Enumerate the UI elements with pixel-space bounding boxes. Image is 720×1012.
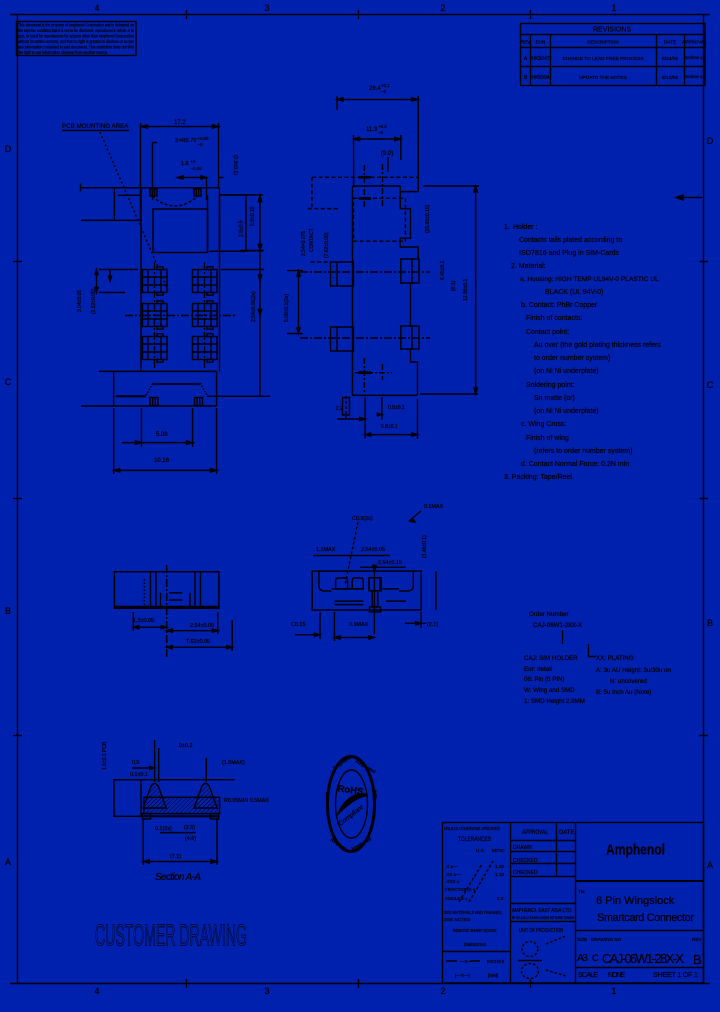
svg-text:TM: TM	[578, 889, 585, 894]
svg-text:REV: REV	[692, 937, 702, 942]
svg-text:(refers to order number system: (refers to order number system)	[534, 448, 632, 455]
svg-text:2.8±0.5: 2.8±0.5	[239, 220, 245, 237]
svg-text:SCALE: SCALE	[578, 970, 598, 979]
svg-text:2×R0.75: 2×R0.75	[175, 138, 196, 144]
svg-text:B: B	[707, 618, 713, 628]
svg-text:2.54±0.05: 2.54±0.05	[190, 623, 214, 629]
svg-text:Eur: detail: Eur: detail	[524, 666, 552, 673]
svg-text:CAJ-06W1-28X-X: CAJ-06W1-28X-X	[533, 622, 582, 629]
svg-text:This document is the property: This document is the property of Ampheno…	[18, 23, 134, 28]
svg-text:(7.62±0.05): (7.62±0.05)	[324, 232, 330, 258]
svg-text:Holder :: Holder :	[513, 224, 538, 231]
svg-text:4: 4	[94, 3, 99, 13]
svg-text:1.: 1.	[504, 224, 510, 231]
svg-text:6 Pin Wingslock: 6 Pin Wingslock	[596, 895, 675, 907]
svg-text:REVISIONS: REVISIONS	[593, 27, 631, 34]
svg-text:Sn matte (or): Sn matte (or)	[534, 395, 575, 402]
svg-text:0.1MAX: 0.1MAX	[424, 504, 444, 510]
svg-text:c. Wing Cross:: c. Wing Cross:	[521, 421, 567, 428]
svg-text:2.54×0.075: 2.54×0.075	[301, 231, 307, 256]
svg-text:b. Contact: PhBr Copper: b. Contact: PhBr Copper	[521, 302, 598, 309]
svg-text:Au over (the gold plating thic: Au over (the gold plating thickness refe…	[534, 342, 661, 349]
svg-text:10.16: 10.16	[154, 458, 170, 464]
svg-text:LTD: LTD	[325, 791, 330, 800]
svg-text:C: C	[707, 380, 714, 390]
svg-text:C0.15: C0.15	[291, 622, 305, 628]
svg-text:2.0: 2.0	[497, 896, 504, 901]
svg-text:UNIT OF PRODUCTION: UNIT OF PRODUCTION	[519, 928, 563, 934]
svg-text:REV: REV	[521, 40, 531, 45]
svg-text:3: 3	[264, 986, 269, 996]
svg-text:N: uncovered: N: uncovered	[610, 678, 647, 685]
svg-text:PCB MOUNTING AREA: PCB MOUNTING AREA	[62, 123, 129, 130]
svg-text:8.45±0.1: 8.45±0.1	[440, 260, 446, 280]
svg-text:DRAWN: DRAWN	[513, 845, 532, 851]
svg-text:ECN: ECN	[536, 40, 546, 45]
svg-text:2.54±0.15: 2.54±0.15	[378, 560, 402, 566]
svg-text:C: C	[592, 953, 599, 963]
svg-text:(9.0): (9.0)	[381, 151, 393, 157]
svg-text:DESCRIPTION: DESCRIPTION	[587, 40, 618, 45]
svg-text:a. Housing: HIGH TEMP UL94V-0: a. Housing: HIGH TEMP UL94V-0 PLASTIC UL	[520, 276, 659, 283]
svg-text:SHEET 1 OF 1: SHEET 1 OF 1	[653, 970, 698, 979]
svg-text:Order Number: Order Number	[529, 611, 569, 618]
svg-text:0.5±0.1: 0.5±0.1	[388, 405, 405, 411]
svg-text:(4.6): (4.6)	[185, 836, 196, 842]
svg-text:5/12/05: 5/12/05	[662, 75, 678, 81]
svg-text:2: 2	[440, 986, 445, 996]
svg-text:A3: A3	[577, 952, 588, 964]
svg-text:A: A	[5, 857, 11, 867]
svg-text:(on Ni Ni underplate): (on Ni Ni underplate)	[534, 408, 599, 415]
svg-text:DIMENSIONS: DIMENSIONS	[464, 942, 486, 947]
svg-text:5.08: 5.08	[156, 432, 168, 438]
svg-text:5.08±0.1(2x): 5.08±0.1(2x)	[284, 294, 290, 322]
svg-text:Soldering point:: Soldering point:	[526, 382, 575, 389]
svg-text:06: Pin (6 PIN): 06: Pin (6 PIN)	[524, 676, 565, 683]
svg-text:R0.05MIN 0.5MAX: R0.05MIN 0.5MAX	[224, 798, 269, 804]
svg-text:A: 3u AU Height: 3u/30u on: A: 3u AU Height: 3u/30u on	[596, 667, 672, 674]
svg-text:C: C	[5, 377, 12, 387]
svg-text:1.10: 1.10	[495, 872, 504, 877]
svg-text:REMOVE SHARP EDGES: REMOVE SHARP EDGES	[453, 928, 497, 933]
svg-text:(7.1): (7.1)	[170, 854, 181, 860]
svg-text:3.04±0.05: 3.04±0.05	[77, 290, 83, 312]
svg-text:the express condition that it: the express condition that it is not to …	[18, 28, 134, 33]
svg-text:CHECKED: CHECKED	[513, 870, 538, 876]
svg-text:+0.05: +0.05	[198, 136, 210, 141]
svg-text:−0.05: −0.05	[191, 166, 203, 171]
svg-text:D: D	[5, 144, 12, 154]
svg-text:(3.45±0.1): (3.45±0.1)	[422, 535, 428, 558]
svg-text:0.5: 0.5	[132, 760, 140, 766]
svg-text:XX: PLATING: XX: PLATING	[596, 655, 634, 662]
svg-text:(25.95±0.15): (25.95±0.15)	[425, 204, 431, 233]
svg-text:1.6±0.1 PCB: 1.6±0.1 PCB	[102, 741, 108, 770]
svg-text:to order number system): to order number system)	[534, 355, 610, 362]
svg-text:3. Packing: Tape/Reel.: 3. Packing: Tape/Reel.	[504, 474, 574, 481]
svg-text:SIZE: SIZE	[577, 937, 587, 942]
svg-text:Andrew Ls: Andrew Ls	[683, 74, 706, 79]
svg-text:26.4: 26.4	[369, 86, 381, 92]
svg-text:D: D	[707, 136, 714, 146]
svg-text:B: 5u inch Au (Note): B: 5u inch Au (Note)	[596, 689, 651, 696]
svg-text:0.1(2x): 0.1(2x)	[155, 826, 172, 832]
svg-text:B: B	[5, 606, 11, 616]
svg-text:0.9MAX: 0.9MAX	[349, 622, 369, 628]
svg-text:INTL: INTL	[372, 790, 378, 801]
svg-text:(2.1): (2.1)	[427, 622, 438, 628]
svg-text:[—X—]: [—X—]	[455, 973, 470, 978]
svg-text:A: A	[707, 860, 713, 870]
svg-text:.XX ±—: .XX ±—	[445, 872, 461, 877]
svg-text:d. Contact Normal Force: 0.2N: d. Contact Normal Force: 0.2N min	[521, 461, 629, 468]
svg-text:Andrew Ls: Andrew Ls	[683, 55, 706, 60]
svg-text:.XXX ±: .XXX ±	[445, 879, 460, 884]
svg-text:DATE: DATE	[559, 830, 575, 836]
svg-text:+0: +0	[191, 159, 197, 164]
svg-text:9±0.2: 9±0.2	[179, 743, 192, 749]
svg-text:1.6: 1.6	[181, 161, 189, 167]
svg-text:HK5994: HK5994	[531, 75, 549, 81]
svg-text:Smartcard Connector: Smartcard Connector	[597, 912, 694, 924]
svg-text:DRAWING NO: DRAWING NO	[591, 937, 622, 942]
svg-text:(on Ni Ni underplate): (on Ni Ni underplate)	[534, 368, 599, 375]
svg-text:part, or used for manufacture: part, or used for manufacture for anyone…	[18, 34, 134, 39]
svg-text:11.3: 11.3	[366, 127, 378, 133]
svg-text:CHECKED: CHECKED	[513, 858, 538, 864]
svg-text:UPDATE THE NOTES: UPDATE THE NOTES	[579, 75, 627, 81]
svg-text:12.95±0.1: 12.95±0.1	[463, 279, 469, 301]
svg-text:BLACK (UL 94V-0): BLACK (UL 94V-0)	[545, 289, 604, 296]
svg-text:TOLERANCES: TOLERANCES	[458, 836, 491, 843]
svg-text:+0.2: +0.2	[378, 124, 387, 129]
svg-text:2.54±0.05(2x): 2.54±0.05(2x)	[251, 291, 257, 322]
svg-text:2. Material:: 2. Material:	[511, 263, 546, 270]
svg-text:UNLESS OTHERWISE SPECIFIED: UNLESS OTHERWISE SPECIFIED	[444, 826, 501, 831]
svg-text:1: SMD Height 2.8MM: 1: SMD Height 2.8MM	[524, 698, 585, 705]
svg-text:Contact point:: Contact point:	[526, 329, 569, 336]
svg-text:2: 2	[440, 3, 445, 13]
svg-text:C0.3(2x): C0.3(2x)	[352, 516, 373, 522]
svg-text:METRIC: METRIC	[492, 848, 505, 853]
svg-text:Contacts tails plated accordin: Contacts tails plated according to	[519, 237, 622, 244]
svg-text:the right to use information o: the right to use information obtained fr…	[18, 50, 108, 55]
svg-text:DATE: DATE	[664, 40, 676, 45]
svg-text:Finish of wing: Finish of wing	[526, 435, 569, 442]
svg-text:4: 4	[94, 986, 99, 996]
svg-text:AMPHENOL EAST ASIA LTD.: AMPHENOL EAST ASIA LTD.	[512, 908, 572, 914]
svg-text:1.50: 1.50	[495, 864, 504, 869]
svg-text:B: B	[693, 952, 702, 967]
svg-text:FRACTIONS ±: FRACTIONS ±	[445, 887, 476, 892]
svg-text:2.54±0.05: 2.54±0.05	[361, 547, 385, 553]
svg-text:−0: −0	[198, 142, 204, 147]
svg-text:HK5047: HK5047	[531, 56, 549, 62]
svg-text:CHANGE TO LEAD FREE PROCESS: CHANGE TO LEAD FREE PROCESS	[562, 56, 643, 62]
svg-text:(0.1): (0.1)	[451, 280, 457, 291]
svg-text:U.S.: U.S.	[476, 848, 485, 853]
svg-text:3: 3	[264, 3, 269, 13]
svg-text:without its written consent, a: without its written consent, and that no…	[18, 39, 134, 44]
svg-text:Section A-A: Section A-A	[155, 872, 201, 883]
svg-text:1.3±0.05: 1.3±0.05	[133, 618, 154, 624]
svg-text:2.2: 2.2	[336, 406, 343, 412]
svg-text:INCHES: INCHES	[487, 959, 504, 964]
svg-text:5F NO.142-1 CHUNG CHENG RD TAI: 5F NO.142-1 CHUNG CHENG RD TAIPEI TAIWAN	[512, 916, 574, 920]
svg-text:5/24/05: 5/24/05	[662, 56, 678, 62]
svg-text:−0: −0	[378, 130, 384, 135]
svg-text:SEE NOTES: SEE NOTES	[444, 917, 470, 922]
svg-text:−0: −0	[381, 89, 387, 94]
svg-text:CUSTOMER DRAWING: CUSTOMER DRAWING	[95, 918, 247, 953]
svg-text:5.6±0.1: 5.6±0.1	[381, 424, 398, 430]
svg-text:ANGLES ±: ANGLES ±	[445, 896, 468, 901]
svg-text:any information contained in s: any information contained in said docume…	[18, 45, 135, 50]
svg-text:5.9±0.15: 5.9±0.15	[250, 206, 256, 226]
svg-text:0.1±0.1: 0.1±0.1	[130, 772, 148, 778]
svg-text:Finish of contacts:: Finish of contacts:	[526, 315, 582, 322]
svg-text:W: Wing and SMD: W: Wing and SMD	[524, 687, 575, 694]
svg-text:Amphenol: Amphenol	[606, 842, 665, 859]
svg-text:1.1MAX: 1.1MAX	[316, 547, 336, 553]
svg-text:7.62±0.05: 7.62±0.05	[186, 639, 210, 645]
svg-text:CAJ-06W1-28X-X: CAJ-06W1-28X-X	[602, 951, 684, 966]
svg-text:SEE MATERIALS AND FINISHES: SEE MATERIALS AND FINISHES	[444, 910, 502, 915]
svg-text:.X ±—: .X ±—	[445, 864, 458, 869]
svg-text:[MM]: [MM]	[488, 973, 498, 978]
svg-text:NONE: NONE	[608, 970, 625, 979]
svg-text:APPROVAL: APPROVAL	[682, 40, 707, 45]
svg-text:ISO7816 and Plug in SIM-Cards: ISO7816 and Plug in SIM-Cards	[519, 250, 619, 257]
svg-text:CAJ: SIM HOLDER: CAJ: SIM HOLDER	[524, 655, 578, 662]
svg-text:+0.1: +0.1	[381, 83, 390, 88]
svg-text:(0.9±0.1): (0.9±0.1)	[232, 155, 238, 175]
svg-text:CONTACT: CONTACT	[309, 228, 315, 252]
svg-text:(2.5): (2.5)	[184, 825, 195, 831]
svg-text:1: 1	[611, 986, 616, 996]
svg-text:1: 1	[611, 3, 616, 13]
svg-text:(1.5MAX): (1.5MAX)	[222, 760, 245, 766]
svg-text:APPROVAL: APPROVAL	[522, 830, 549, 836]
svg-text:17.2: 17.2	[174, 120, 186, 126]
